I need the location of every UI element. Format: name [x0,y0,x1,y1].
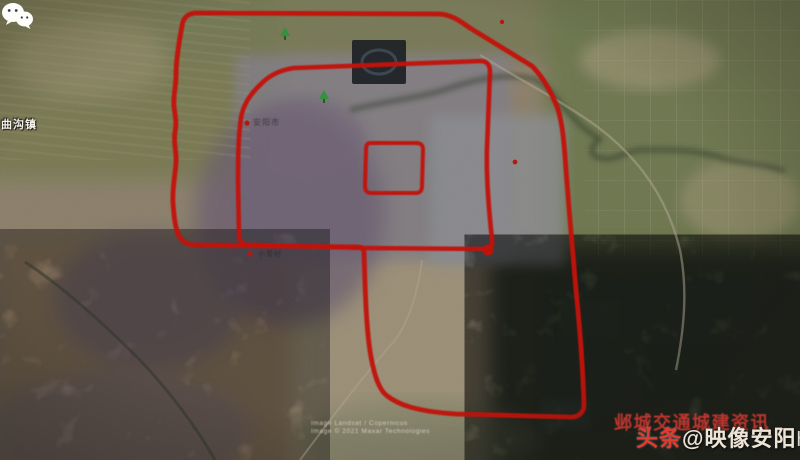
vignette [0,0,800,460]
satellite-basemap [0,0,800,460]
satellite-map-screenshot: 曲沟镇 安阳市 小营村 Image Landsat / Copernicus I… [0,0,800,460]
